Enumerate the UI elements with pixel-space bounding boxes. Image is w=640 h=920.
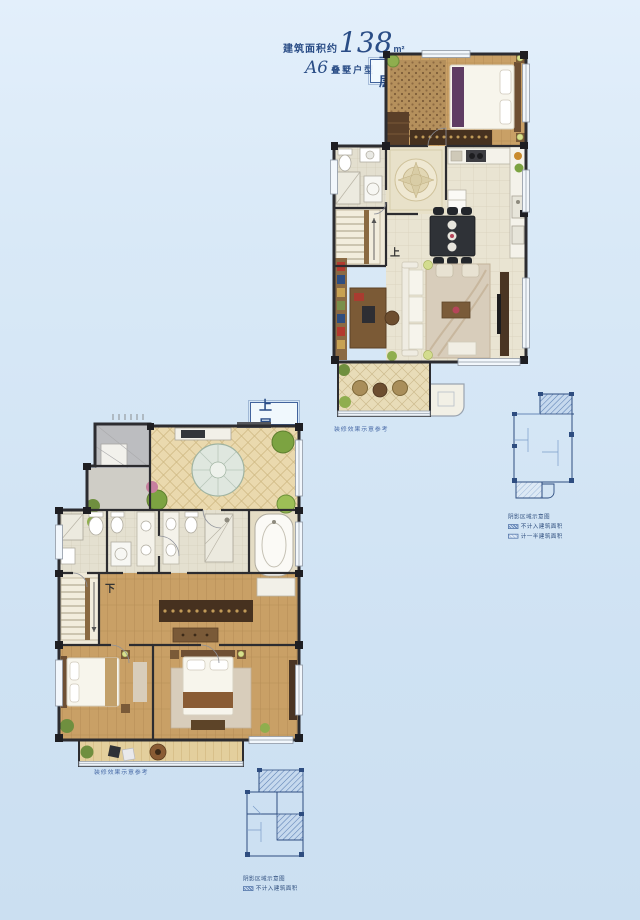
plant	[272, 431, 294, 453]
upper-plan-caption: 装修效果示意参考	[94, 768, 148, 777]
floor-lamp	[424, 351, 433, 360]
vanity	[137, 512, 155, 566]
plant	[81, 746, 94, 759]
sink	[61, 548, 75, 564]
lower-plan-caption: 装修效果示意参考	[334, 425, 388, 434]
bed-headboard	[181, 650, 235, 657]
bedroom-cabinet	[387, 112, 409, 145]
ac-platform	[430, 384, 464, 416]
keyplan-upper-legend: 阴影区域示意图 不计入建筑面积	[243, 875, 355, 893]
legend-swatch-excluded	[243, 886, 253, 891]
stairs-up-label: 上	[390, 246, 400, 259]
keyplan-upper-inset: 阴影区域示意图 不计入建筑面积	[243, 766, 383, 897]
pillow	[500, 70, 511, 94]
pillow	[70, 662, 79, 680]
tv-cabinet	[500, 272, 509, 356]
legend-row: 计一半建筑面积	[508, 532, 620, 540]
bench	[257, 578, 295, 596]
flower-plant	[146, 481, 158, 493]
lower-floor-plan: 上	[330, 50, 532, 426]
pillow-light	[122, 748, 135, 761]
keyplan-lower-inset: 阴影区域示意图 不计入建筑面积 计一半建筑面积	[508, 388, 640, 547]
washer	[111, 542, 131, 566]
desk-chair	[385, 311, 399, 325]
wicker-chair	[393, 381, 408, 396]
legend-title: 阴影区域示意图	[508, 513, 620, 521]
rug	[133, 662, 147, 702]
stairs-down-label: 下	[105, 583, 115, 595]
toilet	[185, 517, 197, 533]
kitchen-appliance	[451, 151, 462, 161]
window	[296, 665, 303, 715]
armchair	[436, 264, 453, 277]
bed-bench	[191, 720, 225, 730]
sofa-seat	[409, 270, 423, 295]
sofa-seat	[409, 324, 423, 349]
living-room	[335, 258, 509, 361]
toilet-tank	[338, 149, 352, 155]
legend-swatch-half	[508, 534, 518, 539]
window	[56, 660, 63, 706]
hatched-area-patio	[277, 814, 303, 840]
pillow	[500, 100, 511, 124]
legend-row: 不计入建筑面积	[508, 523, 620, 531]
sofa-seat	[409, 297, 423, 322]
legend-label: 不计入建筑面积	[521, 523, 563, 531]
window	[56, 525, 63, 559]
toilet	[89, 517, 103, 535]
keyplan-lower-drawing	[508, 388, 586, 504]
bed-headboard	[514, 62, 521, 132]
lamp	[517, 134, 523, 140]
legend-label: 不计入建筑面积	[256, 885, 298, 893]
table-flowers	[453, 307, 460, 314]
bbq-grill	[181, 430, 205, 438]
plant	[338, 364, 350, 376]
legend-title: 阴影区域示意图	[243, 875, 355, 883]
window	[296, 440, 303, 496]
balcony-railing	[79, 762, 243, 767]
nightstand	[121, 704, 130, 713]
dining-set	[430, 207, 475, 265]
plant	[260, 723, 270, 733]
balcony-table	[373, 383, 387, 397]
window	[523, 170, 530, 212]
window	[331, 160, 338, 194]
nightstand	[170, 650, 179, 659]
pillow	[70, 684, 79, 702]
tv	[497, 294, 501, 334]
keyplan-ac-platform	[542, 484, 554, 498]
legend-label: 计一半建筑面积	[521, 532, 563, 540]
toilet	[339, 155, 351, 171]
window	[523, 64, 530, 122]
keyplan-upper-drawing	[243, 766, 307, 866]
laptop	[362, 306, 375, 323]
stair-rail	[364, 210, 369, 264]
stair-rail	[85, 578, 90, 640]
wicker-chair	[353, 381, 368, 396]
roof-table	[101, 444, 127, 466]
window	[296, 522, 303, 566]
books	[337, 262, 345, 349]
bed-throw	[452, 67, 464, 127]
legend-row: 不计入建筑面积	[243, 885, 355, 893]
upper-floor-plan: 下	[53, 410, 305, 768]
window	[523, 278, 530, 348]
fruit-bowl	[514, 152, 522, 160]
armchair	[462, 264, 479, 277]
window	[422, 51, 470, 58]
plant	[339, 396, 351, 408]
vent-ticks	[113, 414, 143, 420]
hatched-area-terrace	[259, 770, 303, 792]
lamp	[238, 651, 244, 657]
ottoman	[448, 342, 476, 355]
hatched-area-bedroom	[540, 394, 572, 414]
desk-books	[354, 293, 364, 301]
shower-head	[225, 518, 230, 523]
bed-throw	[105, 658, 117, 706]
toilet	[111, 517, 123, 533]
floorplan-sheet: 建筑面积约138m² A6 叠墅户型 下 层 上 层	[0, 0, 640, 920]
keyplan-lower-legend: 阴影区域示意图 不计入建筑面积 计一半建筑面积	[508, 513, 620, 540]
unit-type-code: A6	[305, 58, 328, 78]
plant	[60, 719, 74, 733]
window	[249, 737, 293, 744]
balcony-railing	[338, 411, 430, 416]
pillow	[187, 660, 205, 670]
sink	[512, 226, 524, 244]
plant	[387, 351, 397, 361]
half-area-balcony	[516, 482, 542, 498]
legend-swatch-excluded	[508, 524, 518, 529]
bed-runner	[183, 692, 233, 708]
pillow-dark	[108, 745, 121, 758]
sofa-back	[402, 266, 409, 352]
window	[458, 359, 520, 366]
floor-lamp	[424, 261, 433, 270]
